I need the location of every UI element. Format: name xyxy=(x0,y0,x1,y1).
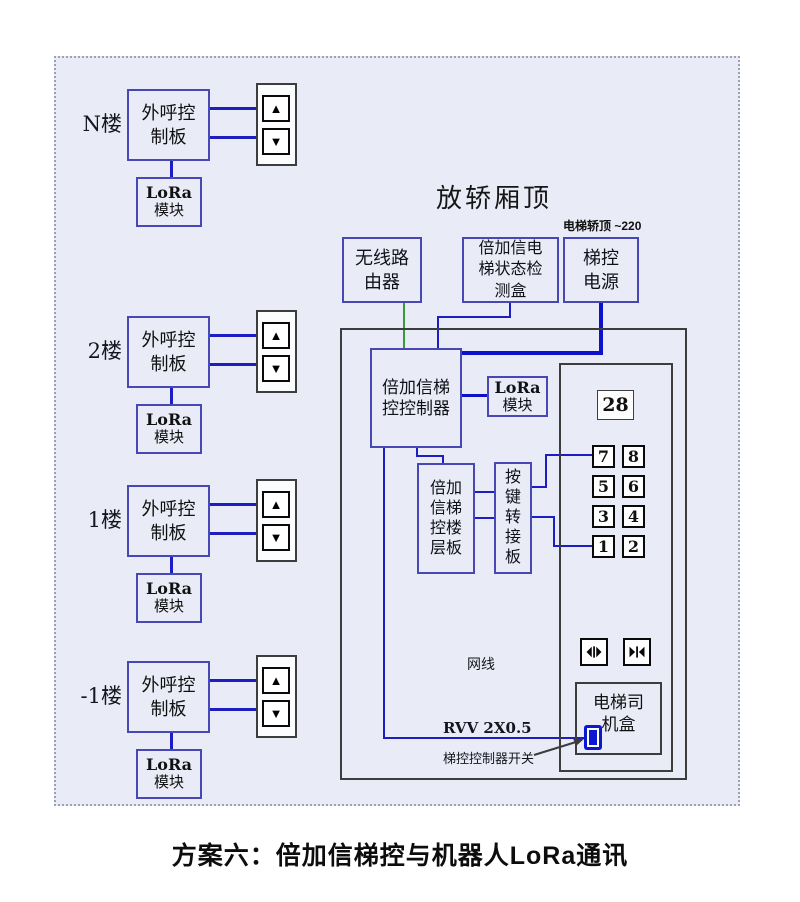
wire-board-to-lora xyxy=(170,161,173,177)
car-button-2-label: 2 xyxy=(628,537,639,556)
wireless-router-label: 无线路由器 xyxy=(355,246,409,295)
power-label: 梯控电源 xyxy=(583,246,619,295)
elevator-status-detector-box: 倍加信电梯状态检测盒 xyxy=(462,237,559,303)
wire-board-to-lora xyxy=(170,388,173,404)
wire-board-to-up xyxy=(210,679,256,682)
up-arrow-icon: ▲ xyxy=(270,673,283,688)
wire-board-link-2 xyxy=(475,517,494,519)
lora-sublabel: 模块 xyxy=(154,774,184,792)
door-open-icon xyxy=(584,643,604,661)
down-arrow-icon: ▼ xyxy=(270,530,283,545)
floor-display: 28 xyxy=(597,390,634,420)
lora-label: LoRa xyxy=(146,184,192,202)
switch-pointer-arrow xyxy=(530,733,588,759)
lora-label: LoRa xyxy=(146,756,192,774)
hall-up-button[interactable]: ▲ xyxy=(262,491,290,518)
wireless-router-box: 无线路由器 xyxy=(342,237,422,303)
call-control-board: 外呼控制板 xyxy=(127,89,210,161)
car-button-8-label: 8 xyxy=(628,447,639,466)
key-adapter-box: 按键转接板 xyxy=(494,462,532,574)
call-control-board: 外呼控制板 xyxy=(127,661,210,733)
door-close-icon xyxy=(627,643,647,661)
controller-label: 倍加信梯控控制器 xyxy=(382,377,450,420)
wire-controller-to-switch-vertical xyxy=(383,448,385,739)
wire-detector-horizontal xyxy=(437,316,511,318)
diagram-caption: 方案六：倍加信梯控与机器人LoRa通讯 xyxy=(0,836,800,872)
rvv-cable-label: RVV 2X0.5 xyxy=(443,719,532,737)
car-button-1-label: 1 xyxy=(598,537,609,556)
call-board-label: 外呼控制板 xyxy=(142,101,196,150)
hall-up-button[interactable]: ▲ xyxy=(262,95,290,122)
car-button-6[interactable]: 6 xyxy=(622,475,645,498)
call-control-board: 外呼控制板 xyxy=(127,316,210,388)
door-open-button[interactable] xyxy=(580,638,608,666)
detector-label: 倍加信电梯状态检测盒 xyxy=(479,238,543,303)
floor-unit-2: 2楼 外呼控制板 ▲ ▼ LoRa 模块 xyxy=(60,310,300,460)
wire-board-to-lora xyxy=(170,557,173,573)
wire-board-to-down xyxy=(210,532,256,535)
down-arrow-icon: ▼ xyxy=(270,706,283,721)
wire-board-to-lora xyxy=(170,733,173,749)
lora-sublabel: 模块 xyxy=(154,202,184,220)
lora-module-box: LoRa 模块 xyxy=(136,749,202,799)
lora-label: LoRa xyxy=(146,411,192,429)
hall-down-button[interactable]: ▼ xyxy=(262,700,290,727)
floor-board-label: 倍加信梯控楼层板 xyxy=(430,479,462,559)
call-control-board: 外呼控制板 xyxy=(127,485,210,557)
car-button-7-label: 7 xyxy=(598,447,609,466)
lora-module-box: LoRa 模块 xyxy=(136,573,202,623)
wire-adapter-up xyxy=(545,454,547,488)
wire-board-to-up xyxy=(210,107,256,110)
car-button-4[interactable]: 4 xyxy=(622,505,645,528)
wire-board-to-down xyxy=(210,708,256,711)
down-arrow-icon: ▼ xyxy=(270,361,283,376)
network-cable-label: 网线 xyxy=(467,654,495,674)
wire-board-to-up xyxy=(210,503,256,506)
car-button-8[interactable]: 8 xyxy=(622,445,645,468)
power-voltage-note: 电梯轿顶 ~220 xyxy=(563,217,641,234)
hall-down-button[interactable]: ▼ xyxy=(262,524,290,551)
wire-board-to-down xyxy=(210,363,256,366)
wire-adapter-out-2 xyxy=(532,516,555,518)
car-lora-module-box: LoRa 模块 xyxy=(487,376,548,417)
up-arrow-icon: ▲ xyxy=(270,328,283,343)
elevator-control-power-box: 梯控电源 xyxy=(563,237,639,303)
car-button-1[interactable]: 1 xyxy=(592,535,615,558)
car-top-title: 放轿厢顶 xyxy=(436,178,552,215)
hall-down-button[interactable]: ▼ xyxy=(262,355,290,382)
floor-board-box: 倍加信梯控楼层板 xyxy=(417,463,475,574)
car-button-6-label: 6 xyxy=(628,477,639,496)
car-button-5[interactable]: 5 xyxy=(592,475,615,498)
hall-down-button[interactable]: ▼ xyxy=(262,128,290,155)
wire-board-to-up xyxy=(210,334,256,337)
switch-label: 梯控控制器开关 xyxy=(443,748,534,767)
key-adapter-label: 按键转接板 xyxy=(505,468,521,568)
elevator-controller-box: 倍加信梯控控制器 xyxy=(370,348,462,448)
wire-adapter-down xyxy=(553,516,555,547)
call-board-label: 外呼控制板 xyxy=(142,497,196,546)
down-arrow-icon: ▼ xyxy=(270,134,283,149)
call-board-label: 外呼控制板 xyxy=(142,673,196,722)
car-button-3-label: 3 xyxy=(598,507,609,526)
door-close-button[interactable] xyxy=(623,638,651,666)
lora-label: LoRa xyxy=(146,580,192,598)
car-button-2[interactable]: 2 xyxy=(622,535,645,558)
hall-up-button[interactable]: ▲ xyxy=(262,667,290,694)
call-board-label: 外呼控制板 xyxy=(142,328,196,377)
car-button-4-label: 4 xyxy=(628,507,639,526)
car-button-3[interactable]: 3 xyxy=(592,505,615,528)
up-arrow-icon: ▲ xyxy=(270,101,283,116)
lora-module-box: LoRa 模块 xyxy=(136,177,202,227)
wire-controller-to-lora xyxy=(462,394,487,397)
floor-display-value: 28 xyxy=(602,394,628,416)
car-button-5-label: 5 xyxy=(598,477,609,496)
lora-label: LoRa xyxy=(495,379,541,397)
floor-label: N楼 xyxy=(60,109,122,139)
floor-label: 1楼 xyxy=(60,505,122,535)
wire-board-to-down xyxy=(210,136,256,139)
lora-sublabel: 模块 xyxy=(502,397,532,415)
lora-module-box: LoRa 模块 xyxy=(136,404,202,454)
floor-unit-minus1: -1楼 外呼控制板 ▲ ▼ LoRa 模块 xyxy=(60,655,300,805)
lora-sublabel: 模块 xyxy=(154,598,184,616)
car-button-7[interactable]: 7 xyxy=(592,445,615,468)
scheme-diagram: N楼 外呼控制板 ▲ ▼ LoRa 模块 2楼 外呼控制板 ▲ ▼ LoRa 模… xyxy=(0,0,800,902)
wire-board-link-1 xyxy=(475,491,494,493)
lora-sublabel: 模块 xyxy=(154,429,184,447)
floor-label: 2楼 xyxy=(60,336,122,366)
wire-controller-step xyxy=(416,455,444,457)
floor-unit-n: N楼 外呼控制板 ▲ ▼ LoRa 模块 xyxy=(60,83,300,233)
up-arrow-icon: ▲ xyxy=(270,497,283,512)
floor-unit-1: 1楼 外呼控制板 ▲ ▼ LoRa 模块 xyxy=(60,479,300,629)
hall-up-button[interactable]: ▲ xyxy=(262,322,290,349)
floor-label: -1楼 xyxy=(60,681,122,711)
